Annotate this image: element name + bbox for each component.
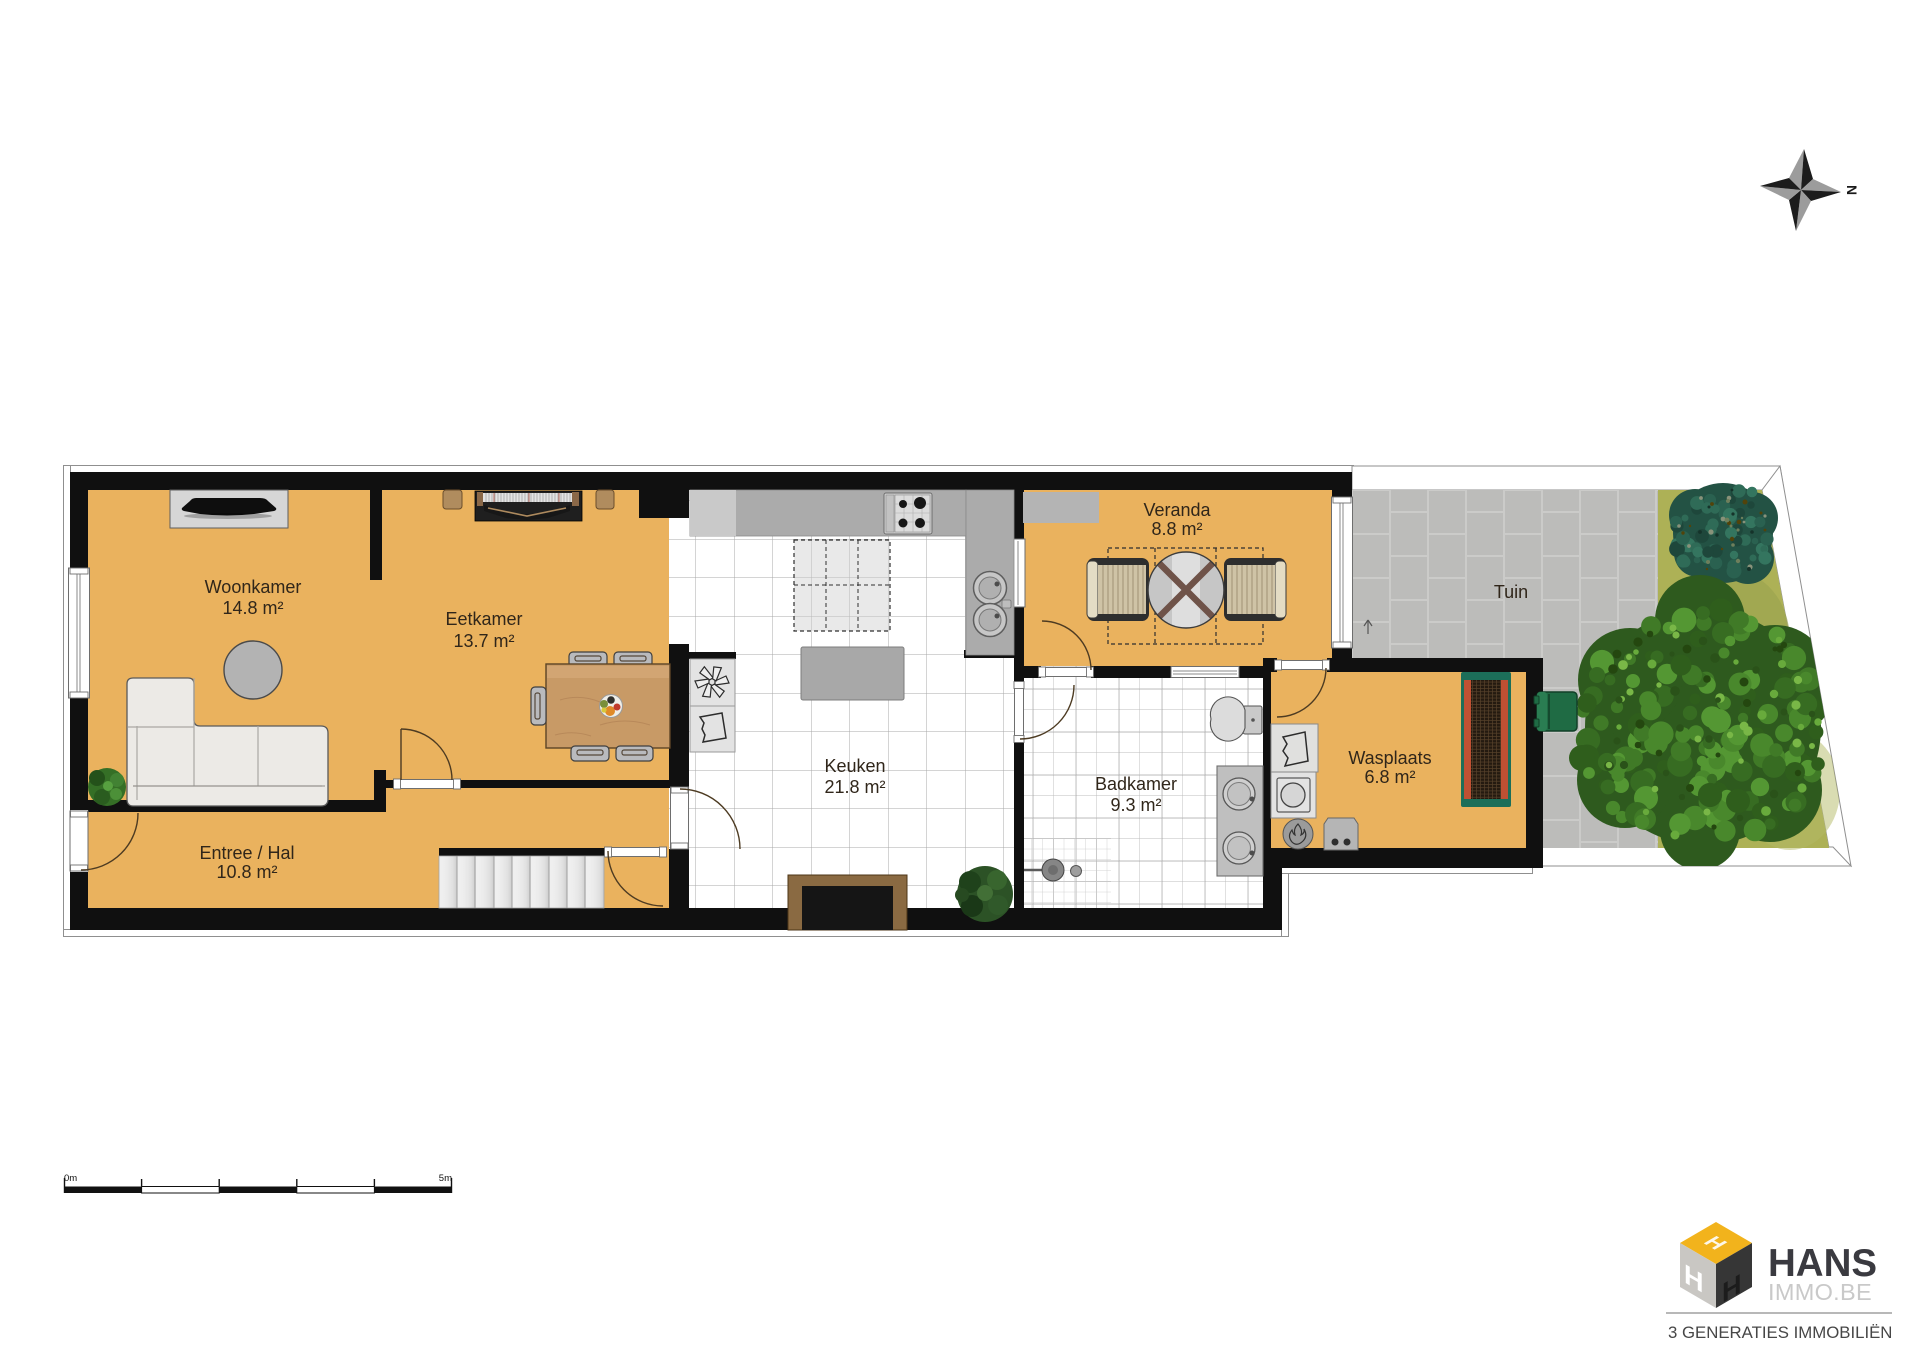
svg-text:Wasplaats: Wasplaats	[1348, 748, 1431, 768]
svg-text:Tuin: Tuin	[1494, 582, 1528, 602]
svg-text:10.8 m²: 10.8 m²	[216, 862, 277, 882]
svg-text:Eetkamer: Eetkamer	[445, 609, 522, 629]
svg-text:0m: 0m	[64, 1173, 77, 1184]
svg-text:Veranda: Veranda	[1143, 500, 1211, 520]
svg-text:13.7 m²: 13.7 m²	[453, 631, 514, 651]
svg-text:Entree / Hal: Entree / Hal	[199, 843, 294, 863]
svg-text:N: N	[1844, 185, 1860, 195]
svg-text:IMMO.BE: IMMO.BE	[1768, 1279, 1872, 1305]
svg-text:14.8 m²: 14.8 m²	[222, 598, 283, 618]
svg-text:6.8 m²: 6.8 m²	[1364, 767, 1415, 787]
svg-text:Woonkamer: Woonkamer	[205, 577, 302, 597]
svg-text:9.3 m²: 9.3 m²	[1110, 795, 1161, 815]
svg-text:5m: 5m	[439, 1173, 452, 1184]
svg-text:Keuken: Keuken	[824, 756, 885, 776]
svg-text:Badkamer: Badkamer	[1095, 774, 1177, 794]
svg-text:3 GENERATIES IMMOBILIËN: 3 GENERATIES IMMOBILIËN	[1668, 1323, 1892, 1342]
svg-text:21.8 m²: 21.8 m²	[824, 777, 885, 797]
svg-text:8.8 m²: 8.8 m²	[1151, 519, 1202, 539]
